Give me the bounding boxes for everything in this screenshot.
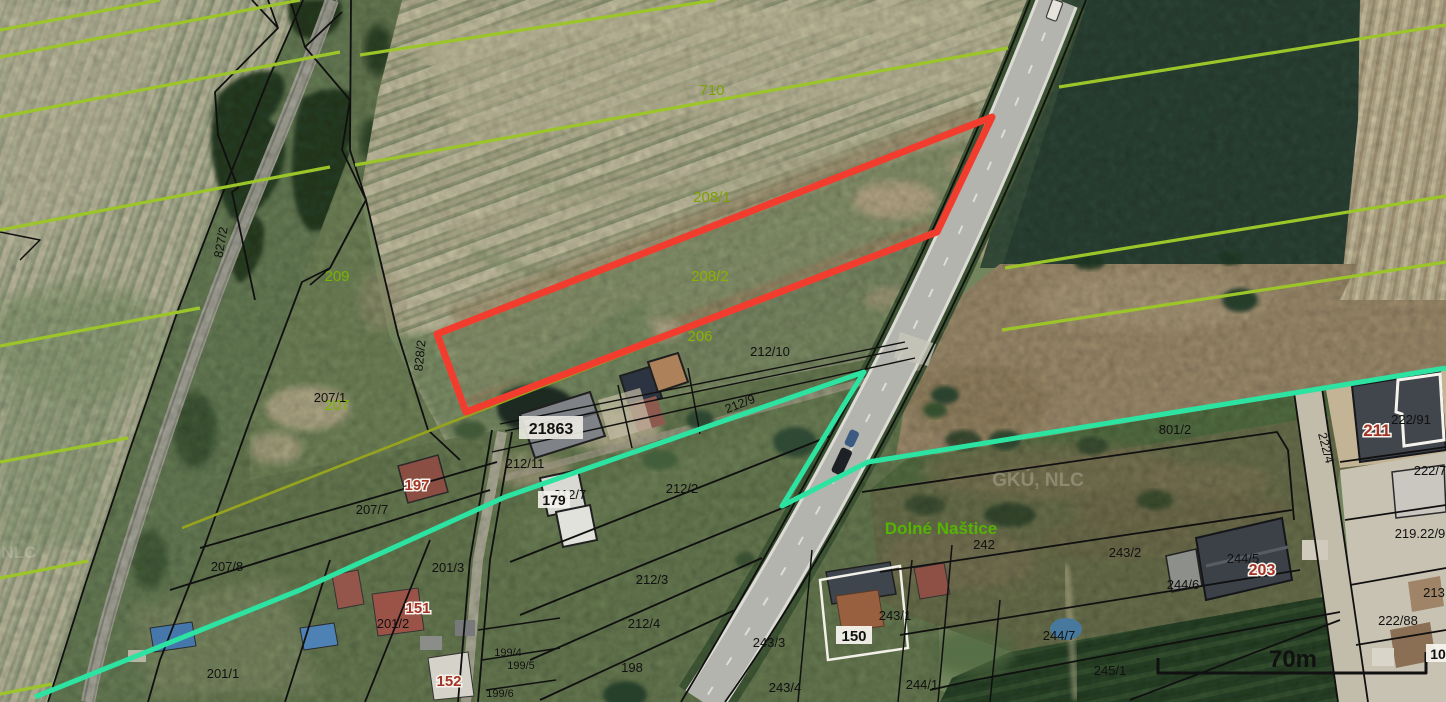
svg-text:199/5: 199/5 (507, 660, 535, 672)
svg-text:222/7: 222/7 (1414, 463, 1446, 478)
svg-text:70m: 70m (1269, 646, 1317, 673)
svg-text:212/2: 212/2 (666, 481, 699, 496)
svg-text:244/6: 244/6 (1167, 577, 1200, 592)
svg-text:212/10: 212/10 (750, 344, 790, 359)
svg-text:199/4: 199/4 (494, 647, 522, 659)
svg-text:222/88: 222/88 (1378, 613, 1418, 628)
svg-text:201/2: 201/2 (377, 616, 410, 631)
svg-text:213: 213 (1423, 585, 1445, 600)
svg-text:208/1: 208/1 (693, 189, 731, 206)
svg-text:203: 203 (1249, 562, 1276, 579)
svg-text:10: 10 (1430, 646, 1446, 662)
svg-text:222/91: 222/91 (1391, 412, 1431, 427)
svg-text:243/3: 243/3 (753, 635, 786, 650)
svg-text:219.22/9: 219.22/9 (1395, 526, 1446, 541)
svg-text:212/4: 212/4 (628, 616, 661, 631)
svg-text:199/6: 199/6 (486, 688, 514, 700)
svg-text:710: 710 (699, 82, 724, 99)
svg-text:21863: 21863 (529, 421, 574, 438)
svg-text:212/3: 212/3 (636, 572, 669, 587)
svg-text:198: 198 (621, 660, 643, 675)
svg-text:150: 150 (841, 628, 866, 645)
svg-text:201/3: 201/3 (432, 560, 465, 575)
svg-text:Dolné Naštice: Dolné Naštice (885, 519, 997, 538)
svg-text:201/1: 201/1 (207, 666, 240, 681)
svg-text:243/1: 243/1 (879, 608, 912, 623)
svg-text:243/2: 243/2 (1109, 545, 1142, 560)
svg-text:206: 206 (687, 328, 712, 345)
svg-text:212/11: 212/11 (506, 456, 545, 471)
svg-text:209: 209 (324, 268, 349, 285)
svg-text:242: 242 (973, 537, 995, 552)
svg-text:244/7: 244/7 (1043, 628, 1076, 643)
svg-text:211: 211 (1363, 421, 1390, 440)
svg-text:197: 197 (404, 477, 429, 494)
svg-text:151: 151 (405, 600, 430, 617)
svg-text:GKÚ, NLC: GKÚ, NLC (992, 469, 1084, 491)
svg-text:208/2: 208/2 (691, 268, 729, 285)
svg-text:207/1: 207/1 (314, 390, 347, 405)
svg-text:245/1: 245/1 (1094, 663, 1127, 678)
svg-text:GKÚ, NLC: GKÚ, NLC (0, 543, 36, 562)
svg-text:244/1: 244/1 (906, 677, 939, 692)
svg-text:243/4: 243/4 (769, 680, 802, 695)
svg-text:152: 152 (436, 673, 461, 690)
svg-text:801/2: 801/2 (1159, 422, 1192, 437)
svg-text:207/7: 207/7 (356, 502, 389, 517)
svg-text:207/8: 207/8 (211, 559, 244, 574)
svg-text:179: 179 (542, 492, 566, 508)
